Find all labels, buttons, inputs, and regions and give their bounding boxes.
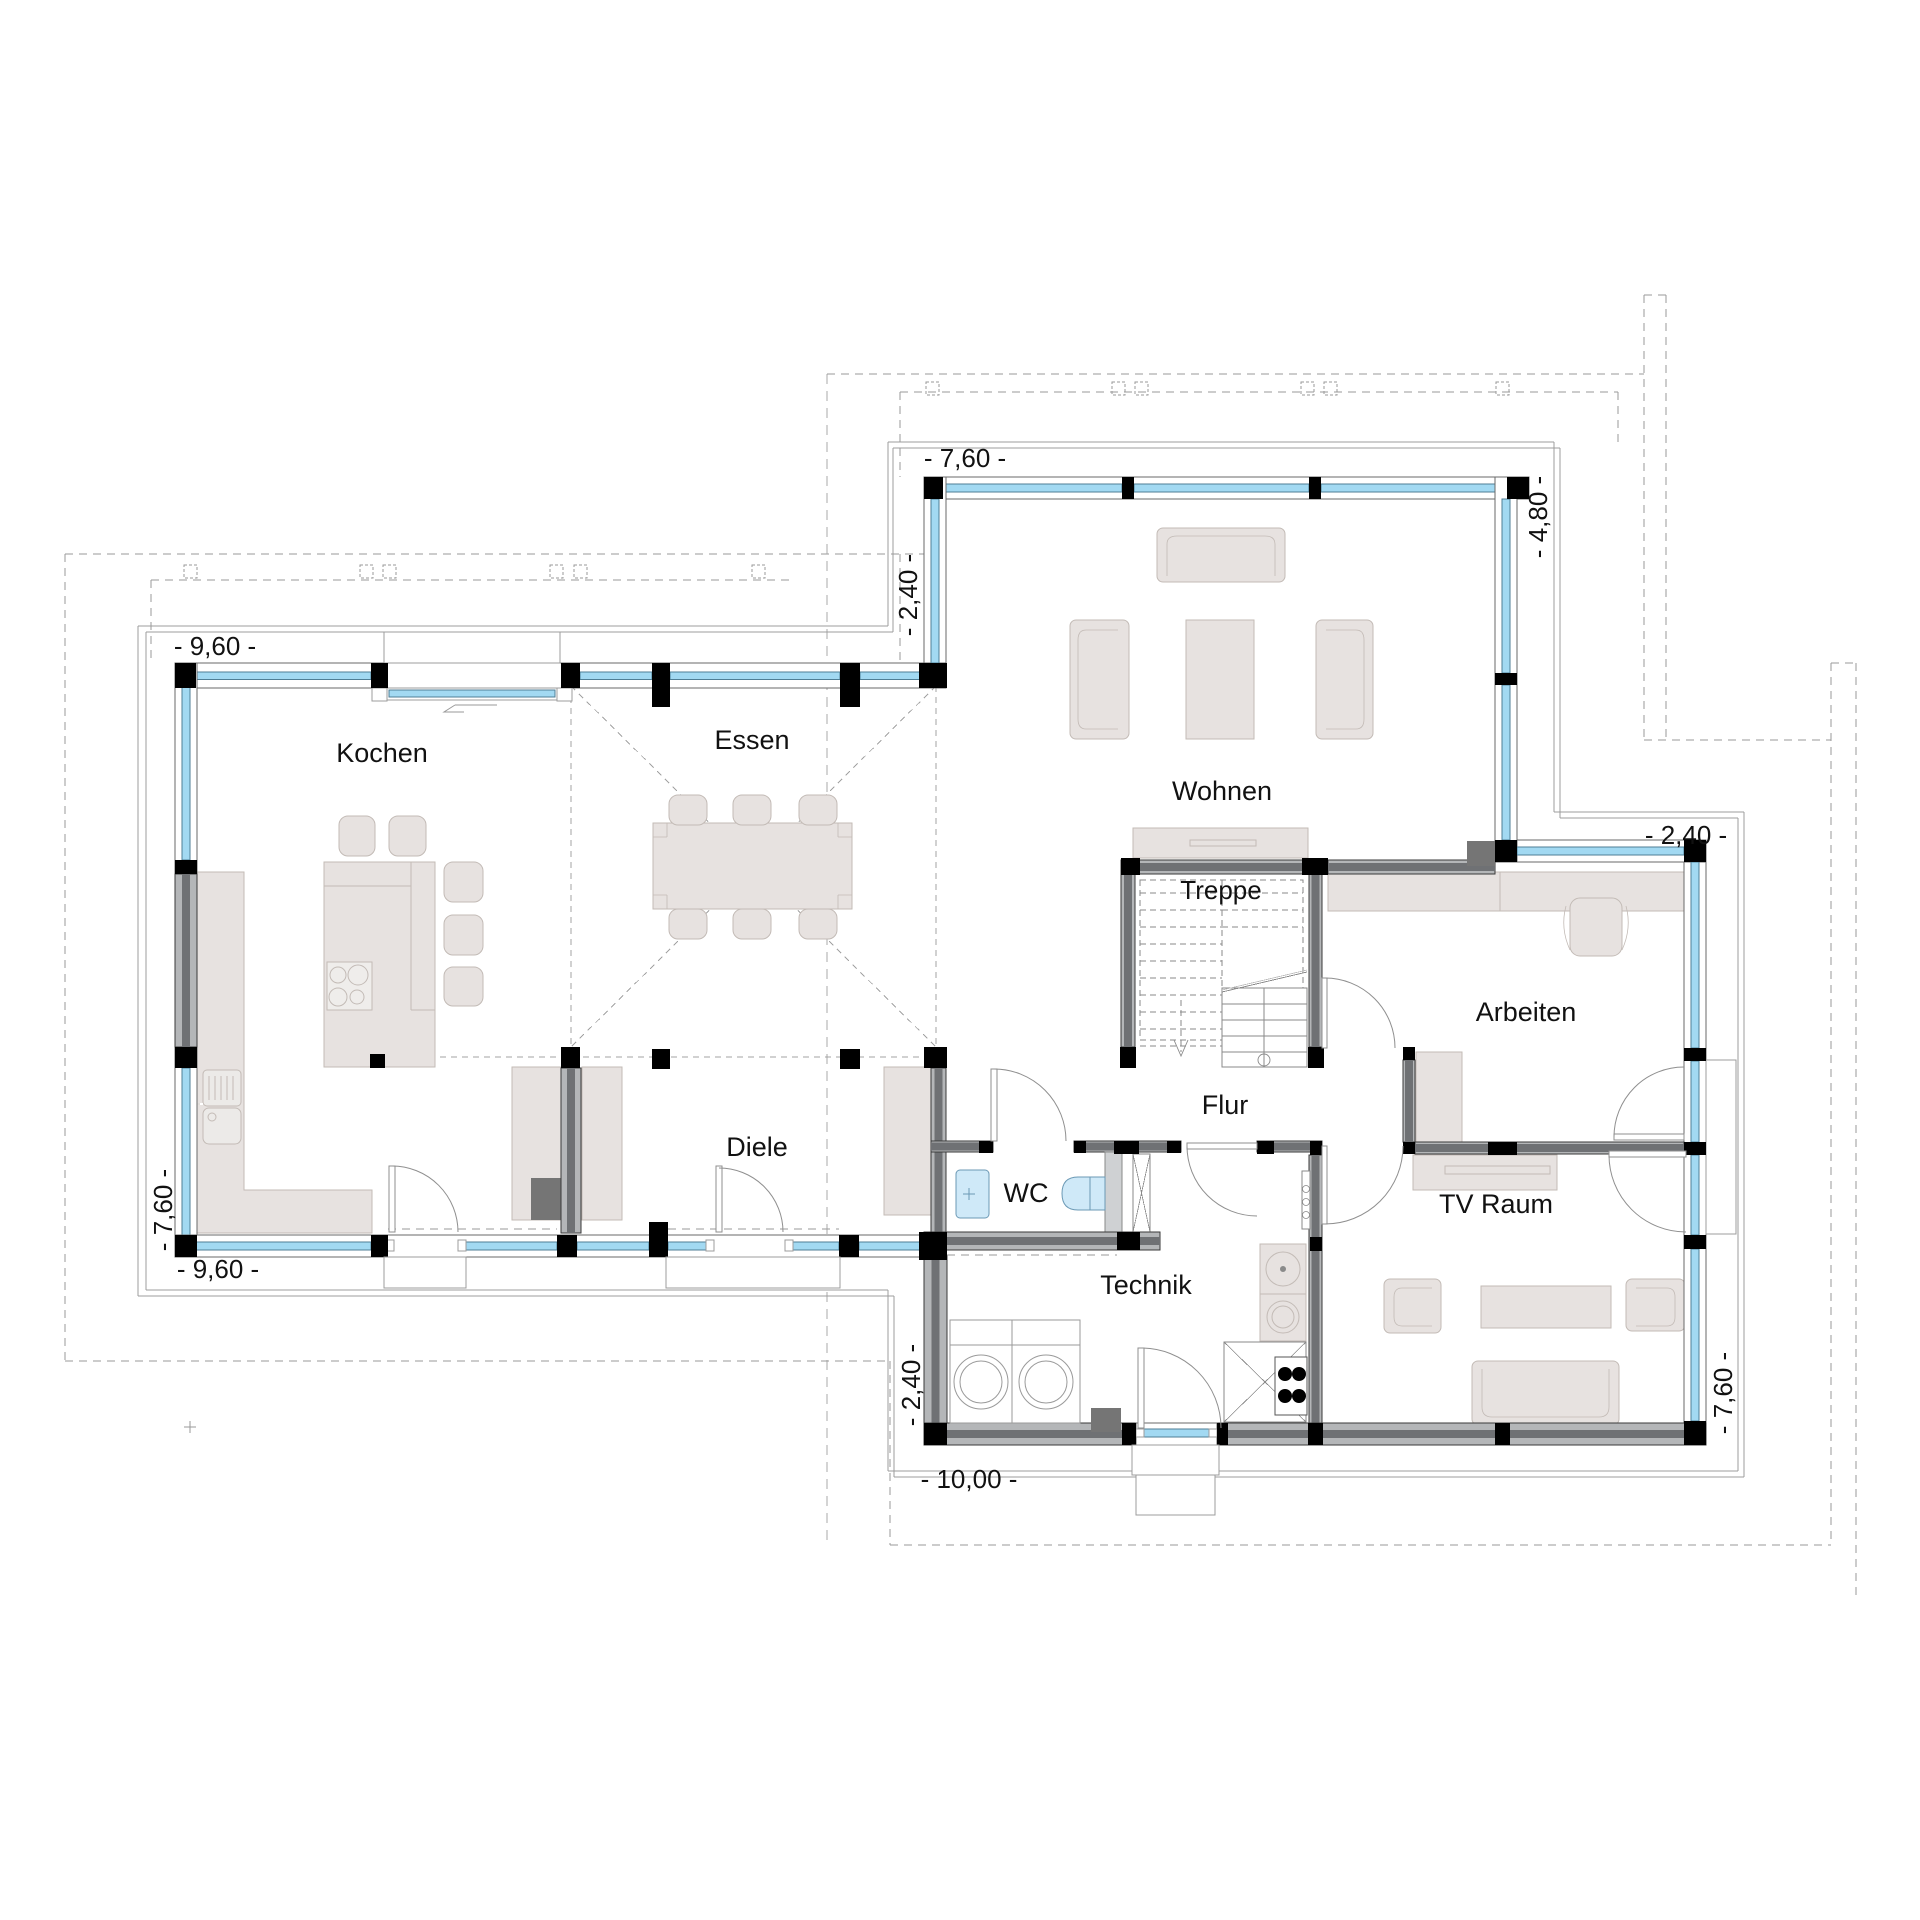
- svg-text:Flur: Flur: [1202, 1090, 1249, 1120]
- svg-text:- 4,80 -: - 4,80 -: [1523, 476, 1553, 558]
- svg-text:- 2,40 -: - 2,40 -: [893, 554, 923, 636]
- svg-text:- 2,40 -: - 2,40 -: [896, 1344, 926, 1426]
- svg-text:- 9,60 -: - 9,60 -: [174, 631, 256, 661]
- svg-text:Kochen: Kochen: [336, 738, 428, 768]
- svg-text:Arbeiten: Arbeiten: [1476, 997, 1577, 1027]
- svg-text:TV Raum: TV Raum: [1439, 1189, 1553, 1219]
- svg-text:- 10,00 -: - 10,00 -: [921, 1464, 1018, 1494]
- svg-text:- 7,60 -: - 7,60 -: [924, 443, 1006, 473]
- svg-text:Technik: Technik: [1100, 1270, 1192, 1300]
- svg-text:- 7,60 -: - 7,60 -: [148, 1169, 178, 1251]
- svg-text:- 2,40 -: - 2,40 -: [1645, 820, 1727, 850]
- svg-text:Essen: Essen: [714, 725, 789, 755]
- svg-text:- 7,60 -: - 7,60 -: [1708, 1352, 1738, 1434]
- svg-text:Wohnen: Wohnen: [1172, 776, 1272, 806]
- svg-text:Diele: Diele: [726, 1132, 788, 1162]
- svg-text:Treppe: Treppe: [1180, 875, 1261, 905]
- svg-text:- 9,60 -: - 9,60 -: [177, 1254, 259, 1284]
- svg-text:WC: WC: [1004, 1178, 1049, 1208]
